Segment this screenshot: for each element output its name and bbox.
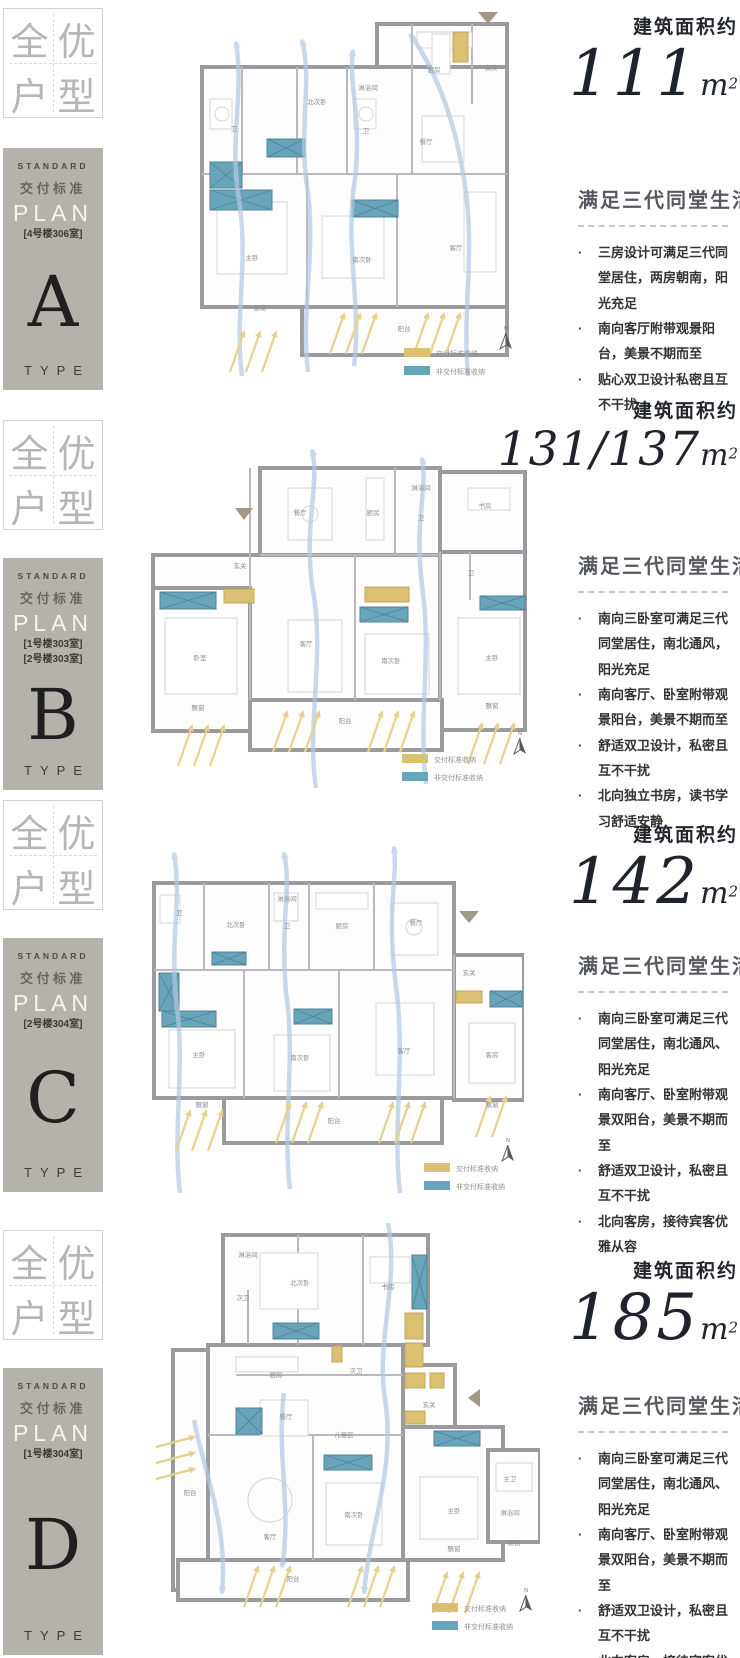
sunlight-arrow bbox=[246, 332, 260, 372]
type-label: TYPE bbox=[16, 1165, 90, 1180]
bullet-dot: · bbox=[578, 1006, 598, 1082]
area-label: 建筑面积约 bbox=[500, 1256, 738, 1283]
room-label: 主卧 bbox=[486, 653, 500, 662]
bullet-text: 舒适双卫设计，私密且互不干扰 bbox=[598, 1598, 740, 1649]
room-label: 飘窗 bbox=[192, 703, 205, 712]
bullet-text: 南向三卧室可满足三代同堂居住，南北通风，阳光充足 bbox=[598, 606, 740, 682]
bullet-dot: · bbox=[578, 733, 598, 784]
bullet-dot: · bbox=[578, 1082, 598, 1158]
type-letter: D bbox=[25, 1462, 81, 1629]
sunlight-arrow bbox=[208, 1111, 222, 1151]
type-label: TYPE bbox=[16, 363, 90, 378]
room-label: 南次卧 bbox=[381, 656, 401, 665]
room-label: 客厅 bbox=[264, 1532, 278, 1541]
area-block-d: 建筑面积约 185m2 bbox=[500, 1256, 738, 1350]
bullet-dot: · bbox=[578, 240, 598, 316]
badge-char: 优 bbox=[53, 11, 100, 66]
room-label: 客房 bbox=[486, 1050, 499, 1059]
compass-n-label: N bbox=[506, 1138, 510, 1144]
badge-char: 优 bbox=[53, 423, 100, 478]
badge-char: 户 bbox=[6, 1288, 53, 1343]
legend-undelivered-swatch bbox=[402, 772, 428, 781]
area-value: 142m2 bbox=[500, 850, 738, 914]
bullet-dot: · bbox=[578, 682, 598, 733]
features-divider bbox=[578, 591, 728, 593]
area-block-c: 建筑面积约 142m2 bbox=[500, 820, 738, 914]
room-label: 卫 bbox=[363, 127, 370, 135]
features-divider bbox=[578, 225, 728, 227]
room-label: 南次卧 bbox=[290, 1053, 310, 1062]
furniture bbox=[376, 1003, 434, 1075]
legend-undelivered-swatch bbox=[404, 366, 430, 375]
room-label: 卫 bbox=[418, 514, 425, 522]
area-label: 建筑面积约 bbox=[500, 820, 738, 847]
room-label: 南次卧 bbox=[344, 1510, 364, 1519]
standard-label: STANDARD bbox=[17, 1381, 88, 1391]
bullet-text: 南向客厅、卧室附带观景阳台，美景不期而至 bbox=[598, 682, 740, 733]
compass-n-label: N bbox=[518, 731, 522, 737]
quality-badge-a: 全 优 户 型 bbox=[3, 8, 103, 118]
legend-undelivered-label: 非交付标准收纳 bbox=[436, 367, 485, 376]
room-label: 淋浴间 bbox=[411, 483, 431, 492]
room-label: 玄关 bbox=[463, 968, 477, 977]
bullet-text: 北向客房，接待宾客优雅从容 bbox=[598, 1209, 740, 1260]
compass-west-half bbox=[514, 738, 520, 754]
compass-east-half bbox=[520, 738, 526, 754]
bullet-dot: · bbox=[578, 1522, 598, 1598]
legend-delivered-swatch bbox=[432, 1603, 458, 1612]
room-label: 飘窗 bbox=[448, 1544, 461, 1553]
room-label: 飘窗 bbox=[196, 1100, 209, 1109]
standard-label: STANDARD bbox=[17, 951, 88, 961]
room-label: 主卫 bbox=[504, 1474, 518, 1483]
feature-bullet: ·南向三卧室可满足三代同堂居住，南北通风、阳光充足 bbox=[578, 1446, 740, 1522]
furniture bbox=[274, 1035, 330, 1091]
compass-icon: N bbox=[502, 1138, 514, 1161]
badge-char: 优 bbox=[53, 803, 100, 858]
feature-bullet: ·舒适双卫设计，私密且互不干扰 bbox=[578, 1598, 740, 1649]
room-label: 餐厅 bbox=[280, 1412, 294, 1421]
room-label: 客厅 bbox=[450, 243, 464, 252]
delivered-storage-box bbox=[365, 587, 409, 602]
room-label: 南次卧 bbox=[352, 255, 372, 264]
standard-label: STANDARD bbox=[17, 571, 88, 581]
unit-number: [4号楼306室] bbox=[24, 229, 83, 242]
floor-plan-c: N交付标准收纳非交付标准收纳卫北次卧淋浴间卫厨房餐厅玄关主卧南次卧客厅客房阳台飘… bbox=[124, 795, 524, 1203]
room-label: 厨房 bbox=[367, 508, 380, 517]
features-d: 满足三代同堂生活 ·南向三卧室可满足三代同堂居住，南北通风、阳光充足 ·南向客厅… bbox=[578, 1390, 740, 1658]
room-label: 主卧 bbox=[193, 1050, 207, 1059]
features-title: 满足三代同堂生活 bbox=[578, 184, 740, 213]
features-a: 满足三代同堂生活 ·三房设计可满足三代同堂居住，两房朝南，阳光充足 ·南向客厅附… bbox=[578, 184, 740, 417]
room-label: 餐厅 bbox=[420, 137, 434, 146]
plan-box-b: STANDARD 交付标准 PLAN [1号楼303室] [2号楼303室] B… bbox=[3, 558, 103, 790]
room-label: 北次卧 bbox=[226, 920, 246, 929]
compass-west-half bbox=[502, 1145, 508, 1161]
room-label: 北次卧 bbox=[290, 1278, 310, 1287]
features-b: 满足三代同堂生活 ·南向三卧室可满足三代同堂居住，南北通风，阳光充足 ·南向客厅… bbox=[578, 550, 740, 834]
area-block-a: 建筑面积约 111m2 bbox=[500, 12, 738, 106]
legend-undelivered-swatch bbox=[424, 1181, 450, 1190]
bullet-text: 舒适双卫设计，私密且互不干扰 bbox=[598, 733, 740, 784]
quality-badge-d: 全 优 户 型 bbox=[3, 1230, 103, 1340]
wall-outline bbox=[250, 700, 442, 750]
bullet-dot: · bbox=[578, 606, 598, 682]
delivered-storage-box bbox=[453, 32, 468, 62]
delivered-storage-box bbox=[405, 1343, 423, 1367]
badge-char: 型 bbox=[53, 1288, 100, 1343]
furniture bbox=[392, 903, 438, 955]
unit-number: [1号楼304室] bbox=[24, 1449, 83, 1462]
bullet-text: 南向三卧室可满足三代同堂居住，南北通风、阳光充足 bbox=[598, 1006, 740, 1082]
compass-n-label: N bbox=[524, 1588, 528, 1594]
delivered-storage-box bbox=[405, 1411, 425, 1424]
features-title: 满足三代同堂生活 bbox=[578, 1390, 740, 1419]
compass-icon: N bbox=[520, 1588, 532, 1611]
features-title: 满足三代同堂生活 bbox=[578, 950, 740, 979]
badge-char: 全 bbox=[6, 11, 53, 66]
room-label: 卫 bbox=[468, 569, 475, 577]
badge-char: 户 bbox=[6, 858, 53, 913]
feature-bullet: ·北向客房，接待宾客优雅从容 bbox=[578, 1649, 740, 1658]
type-letter: B bbox=[27, 666, 78, 763]
room-label: 飘窗 bbox=[508, 1538, 521, 1547]
feature-bullet: ·南向客厅、卧室附带观景阳台，美景不期而至 bbox=[578, 682, 740, 733]
unit-number: [1号楼303室] bbox=[24, 639, 83, 652]
standard-label: STANDARD bbox=[17, 161, 88, 171]
unit-number: [2号楼304室] bbox=[24, 1019, 83, 1032]
room-label: 书房 bbox=[479, 501, 492, 510]
badge-char: 型 bbox=[53, 478, 100, 533]
delivered-storage-box bbox=[430, 1373, 444, 1388]
area-label: 建筑面积约 bbox=[490, 396, 738, 423]
room-label: 阳台 bbox=[328, 1116, 341, 1125]
room-label: 卧室 bbox=[194, 653, 208, 662]
type-label: TYPE bbox=[16, 1628, 90, 1643]
unit-number: [2号楼303室] bbox=[24, 654, 83, 667]
delivery-standard-label: 交付标准 bbox=[20, 178, 86, 197]
room-label: 玄关 bbox=[485, 63, 499, 72]
legend-delivered-label: 交付标准收纳 bbox=[436, 349, 478, 358]
features-divider bbox=[578, 1431, 728, 1433]
room-label: 餐厅 bbox=[410, 918, 424, 927]
legend-delivered-swatch bbox=[424, 1163, 450, 1172]
legend-delivered-label: 交付标准收纳 bbox=[456, 1164, 498, 1173]
room-label: 阳台 bbox=[184, 1488, 197, 1497]
feature-bullet: ·南向客厅、卧室附带观景双阳台，美景不期而至 bbox=[578, 1082, 740, 1158]
feature-bullet: ·南向三卧室可满足三代同堂居住，南北通风、阳光充足 bbox=[578, 1006, 740, 1082]
bullet-text: 南向客厅附带观景阳台，美景不期而至 bbox=[598, 316, 740, 367]
bullet-dot: · bbox=[578, 1158, 598, 1209]
floor-plan-b: N交付标准收纳非交付标准收纳餐厅厨房淋浴间卫书房玄关卧室客厅南次卧主卧卫阳台飘窗… bbox=[140, 420, 530, 798]
entrance-triangle-icon bbox=[459, 911, 479, 923]
quality-badge-c: 全 优 户 型 bbox=[3, 800, 103, 910]
entrance-triangle-icon bbox=[468, 1389, 480, 1407]
furniture bbox=[236, 1357, 298, 1372]
bullet-dot: · bbox=[578, 1209, 598, 1260]
room-label: 卫 bbox=[176, 909, 183, 917]
room-label: 客厅 bbox=[300, 639, 314, 648]
compass-n-label: N bbox=[504, 326, 508, 332]
bullet-text: 北向客房，接待宾客优雅从容 bbox=[598, 1649, 740, 1658]
room-label: 主卧 bbox=[448, 1506, 462, 1515]
delivery-standard-label: 交付标准 bbox=[20, 588, 86, 607]
room-label: 厨房 bbox=[270, 1370, 283, 1379]
room-label: 玄关 bbox=[423, 1400, 437, 1409]
room-label: 客厅 bbox=[398, 1046, 412, 1055]
delivery-standard-label: 交付标准 bbox=[20, 968, 86, 987]
sunlight-arrow bbox=[262, 332, 276, 372]
room-label: 厨房 bbox=[336, 921, 349, 930]
room-label: 次卫 bbox=[350, 1366, 364, 1375]
feature-bullet: ·舒适双卫设计，私密且互不干扰 bbox=[578, 733, 740, 784]
plan-box-c: STANDARD 交付标准 PLAN [2号楼304室] C TYPE bbox=[3, 938, 103, 1192]
delivered-storage-box bbox=[332, 1346, 342, 1362]
room-label: 阳台 bbox=[339, 716, 352, 725]
features-c: 满足三代同堂生活 ·南向三卧室可满足三代同堂居住，南北通风、阳光充足 ·南向客厅… bbox=[578, 950, 740, 1259]
legend-undelivered-label: 非交付标准收纳 bbox=[464, 1622, 513, 1631]
floor-plan-a: N交付标准收纳非交付标准收纳卫北次卧淋浴间卫厨房玄关餐厅主卧南次卧客厅阳台飘窗 bbox=[182, 4, 527, 396]
legend-delivered-label: 交付标准收纳 bbox=[434, 755, 476, 764]
wall-outline bbox=[440, 472, 525, 552]
room-label: 淋浴间 bbox=[500, 1508, 520, 1517]
delivered-storage-box bbox=[224, 589, 254, 603]
room-label: 卫 bbox=[231, 125, 238, 133]
bullet-text: 三房设计可满足三代同堂居住，两房朝南，阳光充足 bbox=[598, 240, 740, 316]
sunlight-arrow bbox=[192, 1111, 206, 1151]
legend-delivered-label: 交付标准收纳 bbox=[464, 1604, 506, 1613]
feature-bullet: ·舒适双卫设计，私密且互不干扰 bbox=[578, 1158, 740, 1209]
room-label: 阳台 bbox=[398, 324, 411, 333]
wall-outline bbox=[260, 468, 440, 556]
compass-east-half bbox=[526, 1595, 532, 1611]
feature-bullet: ·南向客厅附带观景阳台，美景不期而至 bbox=[578, 316, 740, 367]
type-letter: A bbox=[28, 242, 79, 364]
features-divider bbox=[578, 991, 728, 993]
bullet-dot: · bbox=[578, 316, 598, 367]
features-title: 满足三代同堂生活 bbox=[578, 550, 740, 579]
bullet-dot: · bbox=[578, 1649, 598, 1658]
bullet-text: 南向客厅、卧室附带观景双阳台，美景不期而至 bbox=[598, 1082, 740, 1158]
room-label: 飘窗 bbox=[486, 701, 499, 710]
delivered-storage-box bbox=[405, 1313, 423, 1339]
delivered-storage-box bbox=[405, 1373, 425, 1388]
bullet-dot: · bbox=[578, 1446, 598, 1522]
plan-label: PLAN bbox=[13, 610, 93, 637]
plan-box-d: STANDARD 交付标准 PLAN [1号楼304室] D TYPE bbox=[3, 1368, 103, 1655]
badge-char: 户 bbox=[6, 66, 53, 121]
bullet-text: 南向三卧室可满足三代同堂居住，南北通风、阳光充足 bbox=[598, 1446, 740, 1522]
legend-delivered-swatch bbox=[402, 754, 428, 763]
badge-char: 全 bbox=[6, 1233, 53, 1288]
feature-bullet: ·南向三卧室可满足三代同堂居住，南北通风，阳光充足 bbox=[578, 606, 740, 682]
bullet-text: 舒适双卫设计，私密且互不干扰 bbox=[598, 1158, 740, 1209]
compass-icon: N bbox=[514, 731, 526, 754]
area-value: 185m2 bbox=[500, 1286, 738, 1350]
badge-char: 型 bbox=[53, 858, 100, 913]
room-label: 书房 bbox=[382, 1282, 395, 1291]
area-value: 111m2 bbox=[500, 42, 738, 106]
delivered-storage-box bbox=[456, 991, 482, 1003]
compass-west-half bbox=[520, 1595, 526, 1611]
feature-bullet: ·三房设计可满足三代同堂居住，两房朝南，阳光充足 bbox=[578, 240, 740, 316]
room-label: 淋浴间 bbox=[277, 894, 297, 903]
legend-undelivered-label: 非交付标准收纳 bbox=[434, 773, 483, 782]
room-label: 阳台 bbox=[287, 1574, 300, 1583]
delivery-standard-label: 交付标准 bbox=[20, 1398, 86, 1417]
area-block-b: 建筑面积约 131/137m2 bbox=[490, 396, 738, 473]
plan-label: PLAN bbox=[13, 990, 93, 1017]
badge-char: 全 bbox=[6, 803, 53, 858]
furniture bbox=[217, 202, 287, 274]
area-label: 建筑面积约 bbox=[500, 12, 738, 39]
room-label: 北次卧 bbox=[307, 97, 327, 106]
badge-char: 户 bbox=[6, 478, 53, 533]
legend-undelivered-swatch bbox=[432, 1621, 458, 1630]
badge-char: 优 bbox=[53, 1233, 100, 1288]
room-label: 儿童区 bbox=[334, 1430, 354, 1439]
area-value: 131/137m2 bbox=[490, 426, 738, 473]
feature-bullet: ·南向客厅、卧室附带观景双阳台，美景不期而至 bbox=[578, 1522, 740, 1598]
room-label: 餐厅 bbox=[294, 508, 308, 517]
room-label: 主卧 bbox=[246, 253, 260, 262]
bullet-text: 南向客厅、卧室附带观景双阳台，美景不期而至 bbox=[598, 1522, 740, 1598]
brochure-page: 全 优 户 型 STANDARD 交付标准 PLAN [4号楼306室] A T… bbox=[0, 0, 740, 1658]
plan-box-a: STANDARD 交付标准 PLAN [4号楼306室] A TYPE bbox=[3, 148, 103, 390]
compass-east-half bbox=[508, 1145, 514, 1161]
badge-char: 型 bbox=[53, 66, 100, 121]
room-label: 厨房 bbox=[428, 65, 441, 74]
badge-char: 全 bbox=[6, 423, 53, 478]
room-label: 淋浴间 bbox=[358, 83, 378, 92]
legend-undelivered-label: 非交付标准收纳 bbox=[456, 1182, 505, 1191]
furniture bbox=[366, 478, 384, 540]
legend-delivered-swatch bbox=[404, 348, 430, 357]
room-label: 飘窗 bbox=[486, 1100, 499, 1109]
room-label: 次卫 bbox=[237, 1293, 251, 1302]
quality-badge-b: 全 优 户 型 bbox=[3, 420, 103, 530]
room-label: 淋浴间 bbox=[238, 1250, 258, 1259]
room-label: 玄关 bbox=[234, 561, 248, 570]
bullet-dot: · bbox=[578, 1598, 598, 1649]
plan-label: PLAN bbox=[13, 1420, 93, 1447]
type-letter: C bbox=[26, 1032, 80, 1166]
room-label: 飘窗 bbox=[254, 303, 267, 312]
feature-bullet: ·北向客房，接待宾客优雅从容 bbox=[578, 1209, 740, 1260]
type-label: TYPE bbox=[16, 763, 90, 778]
room-label: 卫 bbox=[284, 922, 291, 930]
floor-plan-d: N交付标准收纳非交付标准收纳淋浴间次卫北次卧书房厨房次卫玄关餐厅儿童区客厅阳台南… bbox=[148, 1195, 540, 1633]
furniture bbox=[316, 893, 368, 909]
plan-label: PLAN bbox=[13, 200, 93, 227]
